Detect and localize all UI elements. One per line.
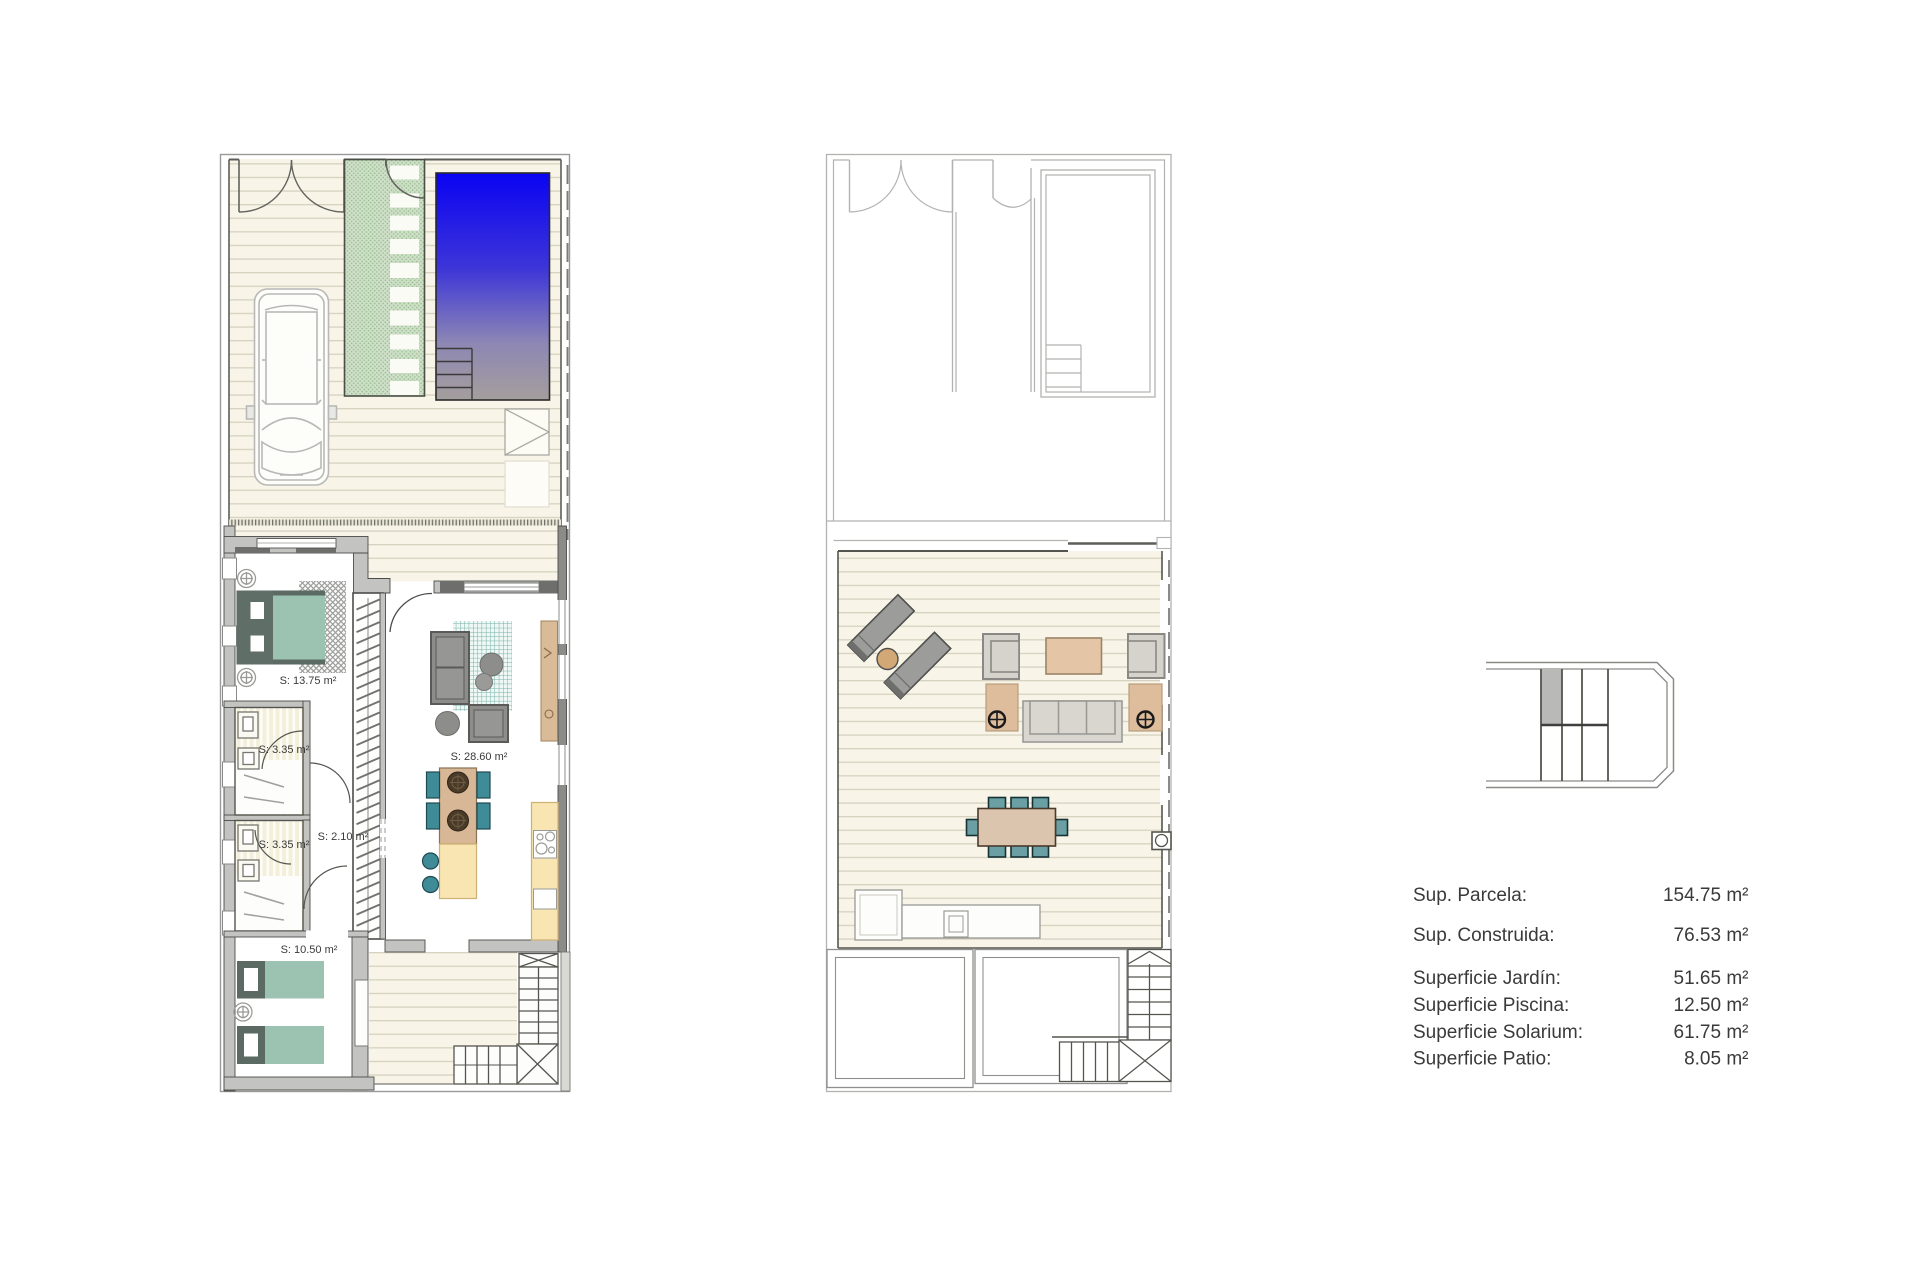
svg-text:S: 28.60 m²: S: 28.60 m²: [451, 751, 508, 763]
svg-text:8.05 m²: 8.05 m²: [1684, 1049, 1748, 1070]
svg-text:61.75 m²: 61.75 m²: [1674, 1022, 1749, 1043]
svg-text:51.65 m²: 51.65 m²: [1674, 968, 1749, 989]
svg-text:S: 3.35 m²: S: 3.35 m²: [259, 839, 310, 851]
svg-text:Superficie Patio:: Superficie Patio:: [1413, 1049, 1551, 1070]
svg-text:Superficie Piscina:: Superficie Piscina:: [1413, 995, 1569, 1016]
svg-text:154.75 m²: 154.75 m²: [1663, 885, 1749, 906]
svg-text:S: 3.35 m²: S: 3.35 m²: [259, 744, 310, 756]
svg-text:S: 2.10 m²: S: 2.10 m²: [318, 831, 369, 843]
svg-text:S: 13.75 m²: S: 13.75 m²: [280, 675, 337, 687]
svg-text:Sup. Parcela:: Sup. Parcela:: [1413, 885, 1527, 906]
svg-text:Sup. Construida:: Sup. Construida:: [1413, 925, 1555, 946]
svg-text:12.50 m²: 12.50 m²: [1674, 995, 1749, 1016]
svg-text:76.53 m²: 76.53 m²: [1674, 925, 1749, 946]
svg-text:Superficie Jardín:: Superficie Jardín:: [1413, 968, 1561, 989]
svg-text:S: 10.50 m²: S: 10.50 m²: [281, 944, 338, 956]
svg-text:Superficie Solarium:: Superficie Solarium:: [1413, 1022, 1583, 1043]
